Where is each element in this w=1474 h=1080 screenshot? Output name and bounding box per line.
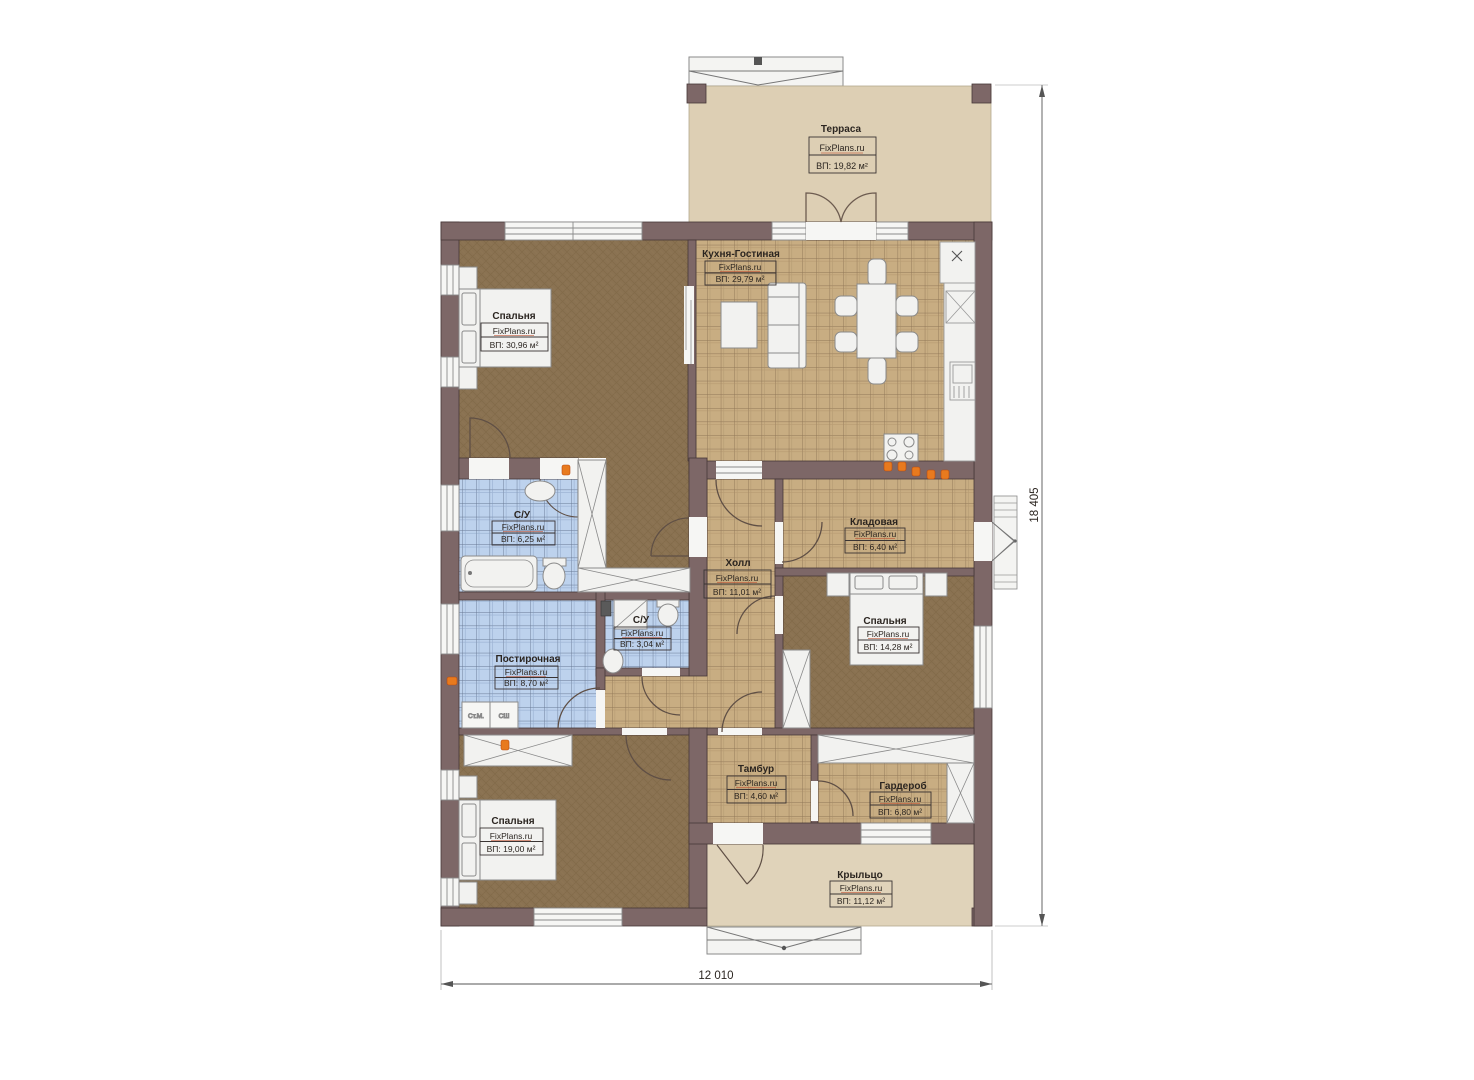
svg-text:Постирочная: Постирочная: [496, 654, 561, 665]
svg-text:СШ: СШ: [499, 713, 510, 720]
svg-text:FixPlans.ru: FixPlans.ru: [490, 831, 533, 841]
svg-text:FixPlans.ru: FixPlans.ru: [854, 529, 897, 539]
svg-text:Спальня: Спальня: [491, 816, 534, 827]
svg-text:Терраса: Терраса: [821, 124, 862, 135]
svg-text:ВП: 30,96 м²: ВП: 30,96 м²: [490, 340, 539, 350]
svg-text:Спальня: Спальня: [863, 616, 906, 627]
svg-text:12 010: 12 010: [698, 970, 733, 982]
svg-text:Крыльцо: Крыльцо: [837, 870, 883, 881]
svg-text:Гардероб: Гардероб: [879, 780, 926, 792]
svg-text:FixPlans.ru: FixPlans.ru: [879, 794, 922, 804]
svg-text:ВП: 29,79 м²: ВП: 29,79 м²: [716, 274, 765, 284]
svg-text:Холл: Холл: [725, 558, 750, 569]
svg-text:ВП: 11,12 м²: ВП: 11,12 м²: [837, 896, 885, 906]
svg-text:FixPlans.ru: FixPlans.ru: [819, 143, 864, 153]
svg-text:ВП: 6,40 м²: ВП: 6,40 м²: [853, 542, 897, 552]
svg-text:FixPlans.ru: FixPlans.ru: [735, 778, 778, 788]
svg-text:ВП: 6,80 м²: ВП: 6,80 м²: [878, 807, 922, 817]
svg-text:ВП: 8,70 м²: ВП: 8,70 м²: [504, 678, 548, 688]
svg-text:FixPlans.ru: FixPlans.ru: [840, 883, 883, 893]
svg-text:FixPlans.ru: FixPlans.ru: [867, 629, 910, 639]
svg-text:ВП: 3,04 м²: ВП: 3,04 м²: [620, 639, 664, 649]
svg-text:ВП: 6,25 м²: ВП: 6,25 м²: [501, 534, 545, 544]
svg-text:Спальня: Спальня: [492, 311, 535, 322]
svg-text:FixPlans.ru: FixPlans.ru: [621, 628, 664, 638]
svg-text:Кухня-Гостиная: Кухня-Гостиная: [702, 249, 780, 260]
svg-text:FixPlans.ru: FixPlans.ru: [493, 326, 536, 336]
svg-text:Ст.М.: Ст.М.: [468, 713, 484, 720]
svg-text:FixPlans.ru: FixPlans.ru: [505, 667, 548, 677]
svg-text:ВП: 19,82 м²: ВП: 19,82 м²: [816, 161, 868, 171]
svg-text:С/У: С/У: [514, 510, 531, 521]
svg-text:ВП: 11,01 м²: ВП: 11,01 м²: [713, 587, 761, 597]
svg-text:FixPlans.ru: FixPlans.ru: [719, 262, 762, 272]
svg-text:С/У: С/У: [633, 615, 650, 626]
svg-text:Тамбур: Тамбур: [738, 763, 774, 775]
svg-text:FixPlans.ru: FixPlans.ru: [502, 522, 545, 532]
svg-text:Кладовая: Кладовая: [850, 517, 898, 528]
svg-text:ВП: 14,28 м²: ВП: 14,28 м²: [864, 642, 913, 652]
svg-text:FixPlans.ru: FixPlans.ru: [716, 573, 759, 583]
svg-text:ВП: 19,00 м²: ВП: 19,00 м²: [487, 844, 536, 854]
svg-text:18 405: 18 405: [1029, 487, 1041, 522]
svg-text:ВП: 4,60 м²: ВП: 4,60 м²: [734, 791, 778, 801]
